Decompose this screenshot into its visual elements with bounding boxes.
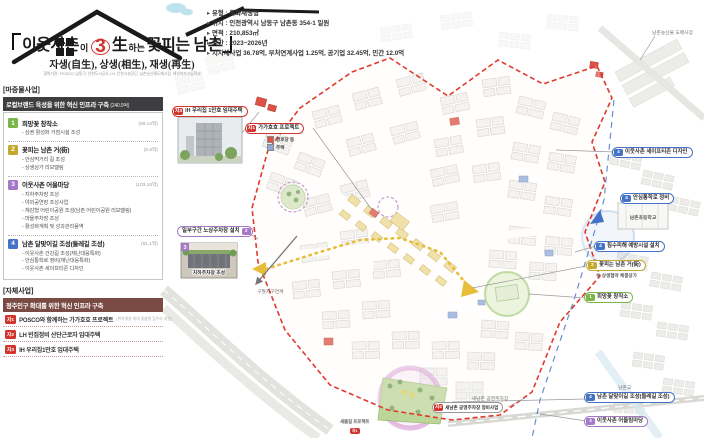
badge: 4	[586, 394, 595, 401]
item-bullets: 안심먹거리 길 조성상생상가 리모델링	[22, 157, 158, 173]
priming-projects-section: [마중물사업] 로컬브랜드 육성을 위한 혁신 인프라 구축 (240.0억) …	[3, 85, 163, 280]
site-boundary	[252, 58, 612, 420]
priming-item-3: 3 이웃사촌 어울마당 (103.16억) 지하주차장 조성야외공연장 조성사업…	[8, 177, 158, 236]
summary-row: 지자체사업 36.78억, 부처연계사업 1.25억, 공기업 32.45억, …	[207, 49, 475, 59]
self-badge: 자1	[5, 315, 16, 324]
priming-header-bar: 로컬브랜드 육성을 위한 혁신 인프라 구축 (240.0억)	[3, 97, 163, 111]
legend-elderly: 경로당 등	[267, 136, 294, 143]
badge: 자3	[174, 108, 183, 115]
self-note: (취약계층 세대 맞춤형 집수리 지원)	[116, 317, 172, 322]
priming-item-1: 1 희망꽃 창작소 (69.14억) 상권 활성화 거점시설 조성	[8, 115, 158, 142]
item-bullets: 상권 활성화 거점시설 조성	[22, 130, 158, 138]
legend-swatch-blue	[267, 144, 274, 151]
bullet-line: 안심먹거리 길 조성	[22, 157, 158, 165]
badge: 4	[614, 149, 623, 156]
item-bullets: 지하주차장 조성야외공연장 조성사업체감형 어린이공원 조성(남촌 어린이공원 …	[22, 192, 158, 232]
bullet-line: 이웃사촌 세이프티존 디자인	[22, 266, 158, 274]
note-shared-shops: ※ 상생협약 체결상가	[596, 273, 637, 279]
item-number-badge: 1	[8, 118, 18, 128]
self-header-bar: 정주인구 확대를 위한 혁신 인프라 구축	[3, 298, 163, 312]
badge: 자1	[247, 125, 256, 132]
badge: 3	[242, 228, 251, 235]
summary-row: 유형 : 특화재생형	[207, 9, 475, 19]
priming-item-2: 2 꽃피는 남촌 거(街) (6.6억) 안심먹거리 길 조성상생상가 리모델링	[8, 142, 158, 177]
legend-swatch-red	[267, 136, 274, 143]
callout-flood: 4 침수피해 예방시설 설치	[594, 241, 665, 252]
label-bridge: 남촌교	[618, 384, 632, 391]
priming-item-4: 4 남촌 달맞이길 조성(둘레길 조성) (61.1억) 이웃사촌 건강길 조성…	[8, 236, 158, 278]
item-number-badge: 4	[8, 239, 18, 249]
callout-nosang: 일부구간 노상주차장 설치 3	[177, 226, 253, 237]
urban-regeneration-poster: .bi{fill:#f1f1ee;stroke:#c9c9c5;stroke-w…	[0, 0, 704, 438]
callout-hope: 1 희망꽃 창작소	[584, 292, 633, 303]
badge: 4	[596, 243, 605, 250]
subtitle: 자생(自生), 상생(相生), 재생(再生)	[6, 56, 238, 71]
self-item-3: 자3 IH 우리집1만호 임대주택	[3, 342, 163, 357]
photo-caption-underground: 지하주차장 조성	[193, 269, 225, 276]
bullet-line: 상권 활성화 거점시설 조성	[22, 130, 158, 138]
self-item-1: 자1 POSCO와 함께하는 가가호호 프로젝트 (취약계층 세대 맞춤형 집수…	[3, 312, 163, 327]
bullet-line: 야외공연장 조성사업	[22, 200, 158, 208]
summary-row: 위치 : 인천광역시 남동구 남촌동 354-1 일원	[207, 19, 475, 29]
photo-underground-parking: 지하주차장 조성 3	[181, 243, 237, 278]
label-guwol: 구월지구연계	[257, 288, 283, 295]
photo-ih-housing	[178, 117, 242, 163]
item-bullets: 이웃사촌 건강길 조성(재난대응특화)안심통학로 정비(재난대응특화)이웃사촌 …	[22, 251, 158, 275]
callout-flower-street: 2 꽃피는 남촌 거(街)	[586, 260, 646, 271]
bullet-line: 활성화계획 및 성과관리용역	[22, 224, 158, 232]
badge-saeddeul: 자1	[350, 428, 360, 434]
item-number-badge: 3	[8, 180, 18, 190]
label-saeddeul: 새뜰길 프로젝트	[340, 419, 369, 425]
label-parking: 새남촌 공영주차장	[472, 395, 509, 402]
self-projects-section: [자체사업] 정주인구 확대를 위한 혁신 인프라 구축 자1 POSCO와 함…	[3, 286, 163, 357]
summary-row: 면적 : 210,853㎡	[207, 29, 475, 39]
callout-saenamchon: 자2 새남촌 공영주차장 정비사업	[432, 402, 503, 413]
project-summary: 유형 : 특화재생형위치 : 인천광역시 남동구 남촌동 354-1 일원면적 …	[207, 9, 475, 59]
badge: 2	[588, 262, 597, 269]
callout-dalmaji: 4 남촌 달맞이길 조성(둘레길 조성)	[584, 392, 675, 403]
section-label-self: [자체사업]	[3, 286, 163, 296]
self-item-2: 자2 LH 빈집정비 산단근로자 임대주택	[3, 327, 163, 342]
self-badge: 자3	[5, 345, 16, 354]
badge: 3	[586, 418, 595, 425]
callout-schoolroad: 4 안심통학로 정비	[620, 193, 674, 204]
callout-ih-housing: 자3 IH 우리집 1만호 임대주택	[172, 106, 248, 117]
title-number-3: 3	[91, 39, 110, 55]
bullet-line: 지하주차장 조성	[22, 192, 158, 200]
partner-organizations: 협력기관 : POSCO, 남동구, 인천도시공사, LH, 인천시설공단, 남…	[4, 71, 240, 77]
bullet-line: 체감형 어린이공원 조성(남촌 어린이공원 리모델링)	[22, 208, 158, 216]
section-label-priming: [마중물사업]	[3, 85, 163, 95]
priming-items-card: 1 희망꽃 창작소 (69.14억) 상권 활성화 거점시설 조성 2 꽃피는 …	[3, 112, 163, 280]
bullet-line: 상생상가 리모델링	[22, 165, 158, 173]
legend-housing: 주택	[267, 144, 284, 151]
bullet-line: 마을주차장 조성	[22, 216, 158, 224]
badge: 4	[622, 195, 631, 202]
summary-row: 기간 : 2023~2026년	[207, 39, 475, 49]
label-school: 남촌초등학교	[630, 214, 657, 221]
callout-gagahoho: 자1 가가호호 프로젝트	[245, 123, 304, 134]
item-number-badge: 2	[8, 145, 18, 155]
label-market: 남촌농산물 도매시장	[652, 29, 694, 36]
badge: 1	[586, 294, 595, 301]
page-title: 이웃사촌 이 3 生 하는 꽃피는 남촌	[6, 31, 238, 55]
callout-safezone: 4 이웃사촌 세이프티존 디자인	[612, 147, 693, 158]
title-bracket-open	[12, 33, 21, 50]
svg-text:3: 3	[183, 245, 186, 251]
badge: 자2	[434, 404, 443, 411]
self-badge: 자2	[5, 330, 16, 339]
callout-oullim: 3 이웃사촌 어울림마당	[584, 416, 648, 427]
